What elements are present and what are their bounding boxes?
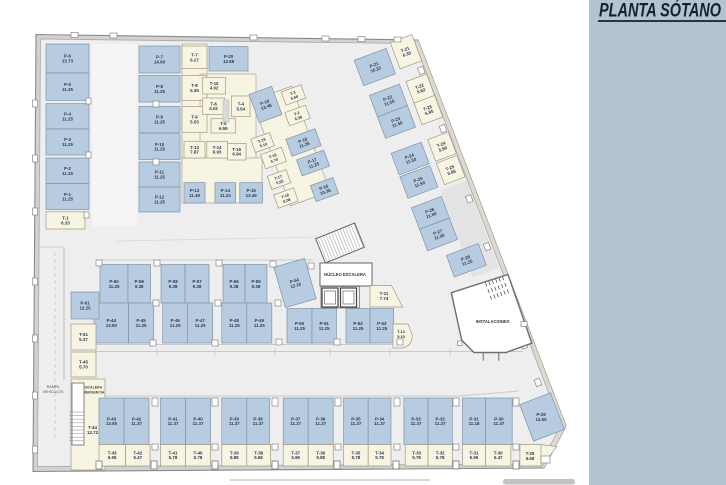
svg-text:11.25: 11.25 xyxy=(62,171,73,176)
svg-text:11.25: 11.25 xyxy=(195,323,206,328)
svg-text:VEHÍCULOS: VEHÍCULOS xyxy=(43,390,64,394)
svg-text:5.78: 5.78 xyxy=(194,455,203,460)
svg-text:11.25: 11.25 xyxy=(62,87,73,92)
svg-text:6.06: 6.06 xyxy=(108,455,117,460)
svg-text:13.65: 13.65 xyxy=(106,421,118,426)
svg-text:4.02: 4.02 xyxy=(209,106,218,111)
svg-text:13.50: 13.50 xyxy=(106,323,118,328)
svg-text:5.96: 5.96 xyxy=(470,455,479,460)
svg-text:5.86: 5.86 xyxy=(291,455,300,460)
svg-text:9.38: 9.38 xyxy=(252,284,261,289)
svg-text:5.35: 5.35 xyxy=(190,88,199,93)
svg-text:5.78: 5.78 xyxy=(169,455,178,460)
svg-text:14.66: 14.66 xyxy=(154,60,166,65)
svg-text:11.25: 11.25 xyxy=(154,119,165,124)
svg-text:11.37: 11.37 xyxy=(374,421,385,426)
svg-text:5.88: 5.88 xyxy=(316,455,325,460)
svg-text:6.59: 6.59 xyxy=(219,126,228,131)
svg-text:13.50: 13.50 xyxy=(535,417,547,422)
svg-text:4.02: 4.02 xyxy=(210,86,219,91)
svg-text:7.87: 7.87 xyxy=(190,150,199,155)
svg-text:ESCALERA: ESCALERA xyxy=(83,386,103,390)
svg-text:5.47: 5.47 xyxy=(133,455,142,460)
svg-text:11.37: 11.37 xyxy=(350,421,361,426)
svg-text:11.25: 11.25 xyxy=(154,147,165,152)
svg-text:9.38: 9.38 xyxy=(193,284,202,289)
svg-text:6.33: 6.33 xyxy=(61,220,70,225)
svg-text:5.78: 5.78 xyxy=(436,455,445,460)
svg-text:11.25: 11.25 xyxy=(62,142,73,147)
svg-text:6.94: 6.94 xyxy=(232,152,241,157)
svg-text:12.25: 12.25 xyxy=(79,306,91,311)
svg-text:RAMPA: RAMPA xyxy=(47,385,60,389)
svg-text:5.47: 5.47 xyxy=(494,455,503,460)
svg-text:5.54: 5.54 xyxy=(236,106,245,111)
svg-text:9.38: 9.38 xyxy=(230,284,239,289)
svg-text:5.78: 5.78 xyxy=(412,455,421,460)
svg-text:INSTALACIONES: INSTALACIONES xyxy=(476,319,510,324)
svg-text:11.37: 11.37 xyxy=(131,421,142,426)
svg-text:11.37: 11.37 xyxy=(290,421,301,426)
svg-text:PLANTA SÓTANO: PLANTA SÓTANO xyxy=(599,0,721,22)
svg-text:13.73: 13.73 xyxy=(62,59,74,64)
svg-text:NÚCLEO ESCALERA: NÚCLEO ESCALERA xyxy=(324,272,366,277)
svg-text:11.37: 11.37 xyxy=(253,421,264,426)
svg-text:11.18: 11.18 xyxy=(469,421,480,426)
svg-text:11.37: 11.37 xyxy=(229,421,240,426)
svg-text:11.24: 11.24 xyxy=(220,193,231,198)
svg-text:11.25: 11.25 xyxy=(294,326,305,331)
svg-text:5.70: 5.70 xyxy=(79,365,88,370)
svg-text:6.27: 6.27 xyxy=(190,57,199,62)
svg-text:7.74: 7.74 xyxy=(380,296,389,301)
svg-text:13.49: 13.49 xyxy=(246,193,258,198)
svg-text:5.37: 5.37 xyxy=(79,337,88,342)
svg-text:11.25: 11.25 xyxy=(154,200,165,205)
svg-text:11.25: 11.25 xyxy=(154,175,165,180)
svg-text:5.88: 5.88 xyxy=(230,455,239,460)
svg-text:5.15: 5.15 xyxy=(397,334,405,339)
svg-text:6.93: 6.93 xyxy=(213,150,222,155)
svg-text:5.78: 5.78 xyxy=(375,455,384,460)
svg-text:9.38: 9.38 xyxy=(135,284,144,289)
svg-text:11.37: 11.37 xyxy=(435,421,446,426)
svg-text:11.37: 11.37 xyxy=(315,421,326,426)
svg-text:11.25: 11.25 xyxy=(62,197,73,202)
svg-text:11.25: 11.25 xyxy=(136,323,147,328)
svg-text:11.25: 11.25 xyxy=(154,89,165,94)
svg-text:11.25: 11.25 xyxy=(376,326,387,331)
svg-text:11.25: 11.25 xyxy=(170,323,181,328)
svg-text:11.25: 11.25 xyxy=(254,323,265,328)
svg-text:11.37: 11.37 xyxy=(411,421,422,426)
svg-text:13.72: 13.72 xyxy=(87,430,99,435)
svg-text:5.86: 5.86 xyxy=(254,455,263,460)
svg-text:11.37: 11.37 xyxy=(493,421,504,426)
svg-text:13.58: 13.58 xyxy=(223,59,235,64)
svg-text:5.68: 5.68 xyxy=(526,456,535,461)
svg-text:5.53: 5.53 xyxy=(190,119,199,124)
svg-text:11.25: 11.25 xyxy=(353,326,364,331)
svg-text:11.25: 11.25 xyxy=(62,116,73,121)
svg-text:9.38: 9.38 xyxy=(169,284,178,289)
svg-text:11.25: 11.25 xyxy=(319,326,330,331)
svg-text:11.37: 11.37 xyxy=(168,421,179,426)
svg-text:11.25: 11.25 xyxy=(229,323,240,328)
svg-text:11.25: 11.25 xyxy=(109,284,120,289)
svg-text:11.37: 11.37 xyxy=(193,421,204,426)
svg-text:11.49: 11.49 xyxy=(189,193,200,198)
svg-text:5.78: 5.78 xyxy=(352,455,361,460)
